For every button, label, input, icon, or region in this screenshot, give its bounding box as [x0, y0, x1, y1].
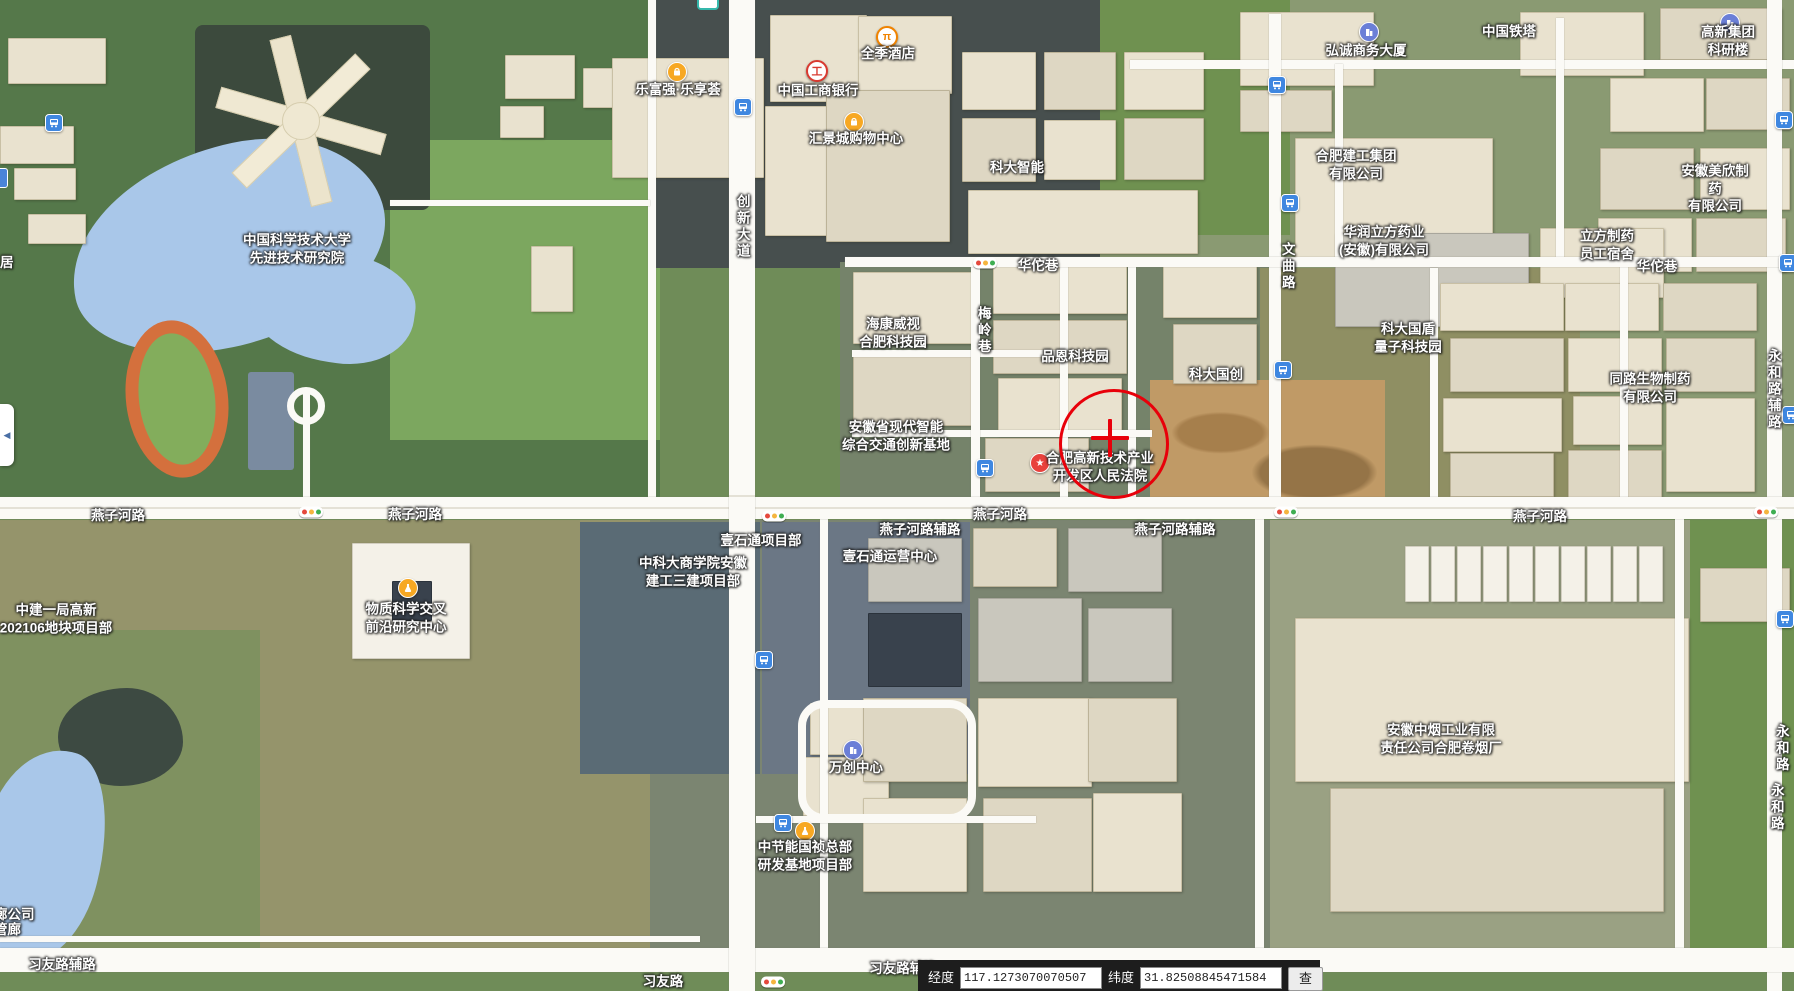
label-road-xiyou: 习友路	[643, 973, 684, 991]
building	[1088, 608, 1172, 682]
metro-station-icon-partial	[697, 0, 719, 10]
street-south-v2	[1255, 519, 1264, 948]
research-flask-icon-1[interactable]	[398, 578, 418, 598]
building	[1561, 546, 1585, 602]
building	[1663, 283, 1757, 331]
building	[1093, 793, 1182, 892]
traffic-light-icon-3	[762, 511, 786, 522]
building	[978, 598, 1082, 682]
office-building-icon-2[interactable]	[1720, 13, 1740, 33]
building	[1330, 788, 1664, 912]
bus-stop-icon-9[interactable]	[1775, 111, 1793, 129]
building	[1044, 120, 1116, 180]
building	[868, 613, 962, 687]
building	[1666, 338, 1755, 392]
street-park-v	[1675, 519, 1684, 948]
building	[1240, 90, 1332, 132]
bus-stop-icon-6[interactable]	[755, 651, 773, 669]
bus-stop-icon-1[interactable]	[45, 114, 63, 132]
building	[28, 214, 86, 244]
bus-stop-icon-12[interactable]	[1776, 610, 1794, 628]
building	[1163, 266, 1257, 318]
street-campus-h	[390, 200, 650, 206]
building	[8, 38, 106, 84]
building	[1660, 8, 1782, 60]
building	[0, 126, 74, 164]
traffic-light-icon-1	[973, 258, 997, 269]
street-ne-v3	[1620, 262, 1628, 512]
shopping-bag-icon-2[interactable]	[844, 112, 864, 132]
building	[1240, 12, 1374, 86]
map-canvas[interactable]: ◀ 经度 纬度 查询 中国科学技术大学 先进技术研究院乐富强·乐享荟中国工商银行…	[0, 0, 1794, 991]
crosshair-marker	[1108, 419, 1112, 457]
building	[531, 246, 573, 312]
icbc-bank-icon[interactable]: 工	[806, 60, 828, 82]
building	[853, 272, 977, 344]
building	[1509, 546, 1533, 602]
bus-stop-icon-3[interactable]	[1268, 76, 1286, 94]
shopping-bag-icon-1[interactable]	[667, 62, 687, 82]
latitude-label: 纬度	[1108, 967, 1134, 989]
building	[1405, 546, 1429, 602]
terrain-lawn-campus	[390, 140, 660, 440]
building	[1450, 338, 1564, 392]
building	[1044, 52, 1116, 110]
bus-stop-icon-4[interactable]	[1281, 194, 1299, 212]
building	[853, 352, 977, 426]
building	[1173, 324, 1257, 384]
office-building-icon-3[interactable]	[843, 740, 863, 760]
traffic-light-icon-2	[299, 507, 323, 518]
street-mid-h1	[852, 350, 1064, 357]
building	[962, 52, 1036, 110]
building	[973, 528, 1057, 587]
building	[1443, 398, 1562, 452]
x-shaped-building	[215, 38, 385, 202]
building	[1535, 546, 1559, 602]
building	[978, 698, 1092, 787]
coordinate-search-button[interactable]: 查询	[1288, 967, 1323, 991]
hotel-icon[interactable]: π	[876, 26, 898, 48]
building	[1088, 698, 1177, 782]
building	[505, 55, 575, 99]
building	[1124, 118, 1204, 180]
target-circle-marker	[1059, 389, 1169, 499]
building	[1568, 338, 1662, 392]
building	[1573, 396, 1662, 445]
building	[1431, 546, 1455, 602]
building	[500, 106, 544, 138]
basketball-courts	[248, 372, 294, 470]
court-star-icon[interactable]: ★	[1030, 453, 1050, 473]
street-guodun-v	[1430, 268, 1438, 512]
coordinate-search-bar: 经度 纬度 查询	[918, 960, 1320, 991]
building	[1295, 618, 1689, 782]
panel-collapse-button[interactable]: ◀	[0, 404, 14, 466]
road-yonghe	[1767, 0, 1782, 991]
building	[1440, 283, 1564, 331]
building	[1568, 450, 1662, 498]
road-xiyou	[0, 948, 1794, 972]
street-ne-v2	[1335, 64, 1343, 260]
bus-stop-icon-11[interactable]	[1782, 406, 1794, 424]
office-building-icon-1[interactable]	[1359, 22, 1379, 42]
building	[770, 15, 867, 102]
longitude-label: 经度	[928, 967, 954, 989]
street-campus-east	[648, 0, 656, 497]
latitude-input[interactable]	[1140, 967, 1282, 989]
wanchuang-loop-road	[798, 700, 976, 822]
road-xiyou-fulu	[0, 936, 700, 942]
roundabout	[287, 387, 325, 425]
building	[14, 168, 76, 200]
bus-stop-icon-10[interactable]	[1779, 254, 1794, 272]
traffic-light-icon-6	[761, 977, 785, 988]
poi-icon-partial-left	[0, 168, 8, 188]
terrain-construction-dirt	[1150, 380, 1385, 512]
building	[1457, 546, 1481, 602]
building	[1587, 546, 1611, 602]
street-ne-h1	[1130, 60, 1794, 69]
longitude-input[interactable]	[960, 967, 1102, 989]
building	[1610, 78, 1704, 132]
road-chuangxin-avenue	[729, 0, 755, 991]
building	[1639, 546, 1663, 602]
building	[983, 798, 1092, 892]
building	[1450, 453, 1554, 497]
road-yanzihe	[0, 497, 1794, 519]
building	[1483, 546, 1507, 602]
building	[1565, 283, 1659, 331]
bus-stop-icon-5[interactable]	[976, 459, 994, 477]
building	[1600, 148, 1694, 210]
traffic-light-icon-4	[1274, 507, 1298, 518]
building	[1613, 546, 1637, 602]
building	[858, 16, 952, 94]
building	[1068, 528, 1162, 592]
building	[968, 190, 1198, 254]
street-mid-v1	[1060, 262, 1068, 512]
traffic-light-icon-5	[1754, 507, 1778, 518]
building	[962, 118, 1036, 182]
bus-stop-icon-7[interactable]	[774, 814, 792, 832]
bus-stop-icon-2[interactable]	[734, 98, 752, 116]
street-ne-v1	[1556, 18, 1564, 260]
building	[868, 538, 962, 602]
building	[826, 90, 950, 242]
research-flask-icon-2[interactable]	[795, 821, 815, 841]
building	[1666, 398, 1755, 492]
bus-stop-icon-8[interactable]	[1274, 361, 1292, 379]
